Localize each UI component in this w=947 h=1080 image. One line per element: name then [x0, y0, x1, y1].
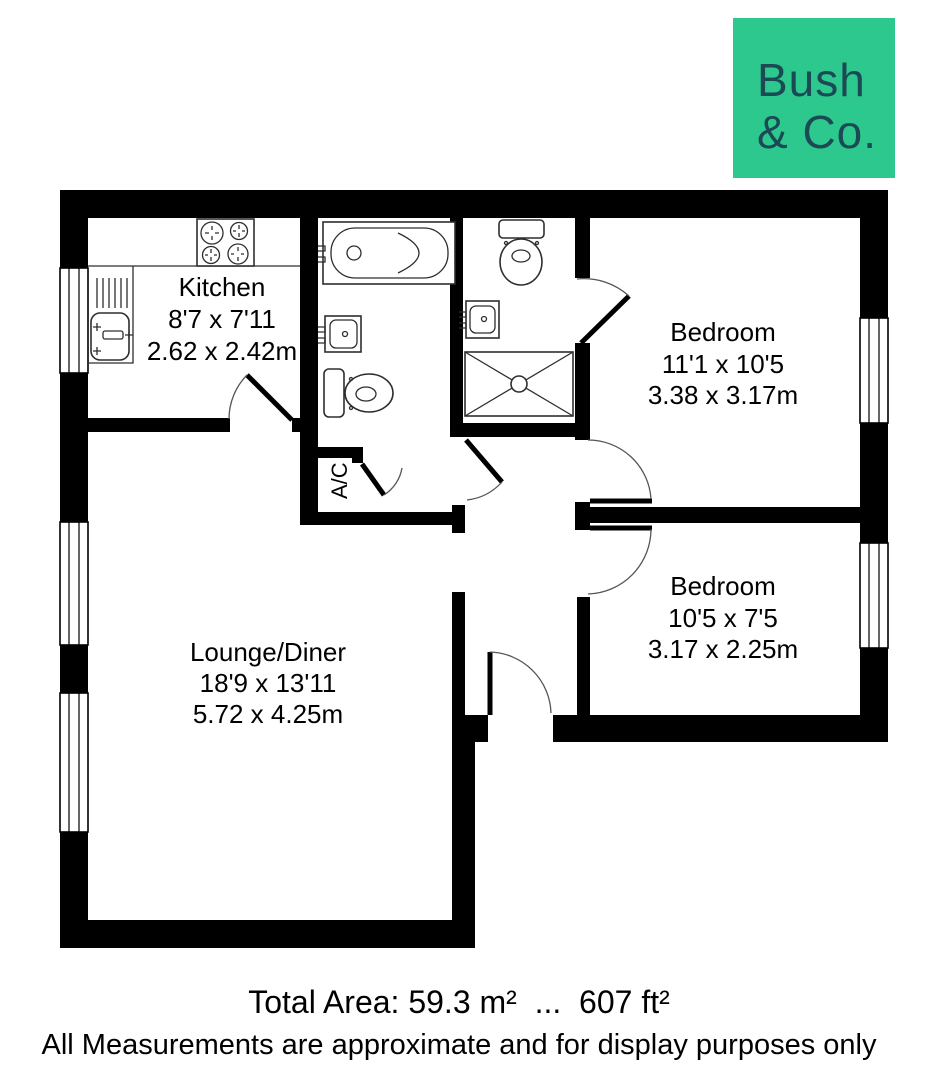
logo-text: Bush & Co. [757, 54, 877, 158]
kitchen-dims-imperial: 8'7 x 7'11 [168, 304, 276, 334]
bedroom-2-door [588, 528, 652, 594]
wall-segment [452, 592, 465, 717]
footer: Total Area: 59.3 m² ... 607 ft² All Meas… [0, 984, 918, 1062]
kitchen-window [60, 268, 88, 373]
bedroom-1-dims-imperial: 11'1 x 10'5 [662, 349, 784, 379]
wall-segment [553, 715, 888, 742]
bathroom-door [466, 440, 502, 500]
wall-segment [577, 597, 590, 717]
bathroom-fixtures [318, 222, 455, 417]
bedroom-1-window [860, 318, 888, 423]
wall-segment [60, 418, 230, 432]
bedroom-2-dims-imperial: 10'5 x 7'5 [668, 603, 778, 633]
wall-segment [352, 447, 363, 463]
bedroom-2-window [860, 543, 888, 648]
lounge-window-upper [60, 522, 88, 645]
ensuite-door [577, 279, 629, 343]
disclaimer-text: All Measurements are approximate and for… [0, 1029, 918, 1062]
wall-segment [452, 742, 475, 948]
bedroom-1-door [588, 440, 652, 501]
ac-closet-door [362, 464, 402, 495]
bathroom-toilet [324, 369, 393, 417]
bedroom-2-dims-metric: 3.17 x 2.25m [648, 634, 798, 664]
front-door [490, 652, 551, 715]
kitchen-dims-metric: 2.62 x 2.42m [147, 336, 297, 366]
room-labels: Kitchen 8'7 x 7'11 2.62 x 2.42m Bedroom … [147, 272, 798, 729]
bathroom-basin [318, 316, 361, 352]
hob [197, 219, 254, 266]
logo-line-1: Bush [757, 54, 877, 106]
shower-basin [459, 301, 499, 338]
lounge-window-lower [60, 693, 88, 832]
lounge-dims-imperial: 18'9 x 13'11 [200, 668, 337, 698]
kitchen-label: Kitchen [179, 272, 266, 302]
bedroom-1-dims-metric: 3.38 x 3.17m [648, 380, 798, 410]
total-area-text: Total Area: 59.3 m² ... 607 ft² [0, 984, 918, 1021]
wall-segment [300, 432, 318, 525]
wall-segment [575, 218, 590, 278]
wall-segment [860, 190, 888, 742]
floorplan-page: Bush & Co. [0, 0, 947, 1080]
wall-segment [452, 715, 488, 742]
wall-segment [575, 343, 590, 440]
wall-segment [575, 507, 860, 523]
logo: Bush & Co. [733, 18, 895, 178]
kitchen-door [229, 375, 292, 420]
shower-toilet [499, 220, 544, 285]
wall-segment [300, 512, 460, 525]
shower-room-fixtures [459, 220, 573, 416]
ac-closet-label: A/C [327, 462, 352, 499]
wall-segment [450, 423, 590, 437]
wall-segment [60, 190, 888, 218]
kitchen-sink [91, 278, 133, 360]
bedroom-2-label: Bedroom [670, 571, 776, 601]
lounge-dims-metric: 5.72 x 4.25m [193, 699, 343, 729]
shower-tray [465, 352, 573, 416]
lounge-label: Lounge/Diner [190, 637, 346, 667]
wall-segment [300, 218, 318, 432]
bedroom-1-label: Bedroom [670, 317, 776, 347]
bathtub [318, 222, 455, 284]
wall-segment [60, 920, 475, 948]
logo-line-2: & Co. [757, 106, 877, 158]
